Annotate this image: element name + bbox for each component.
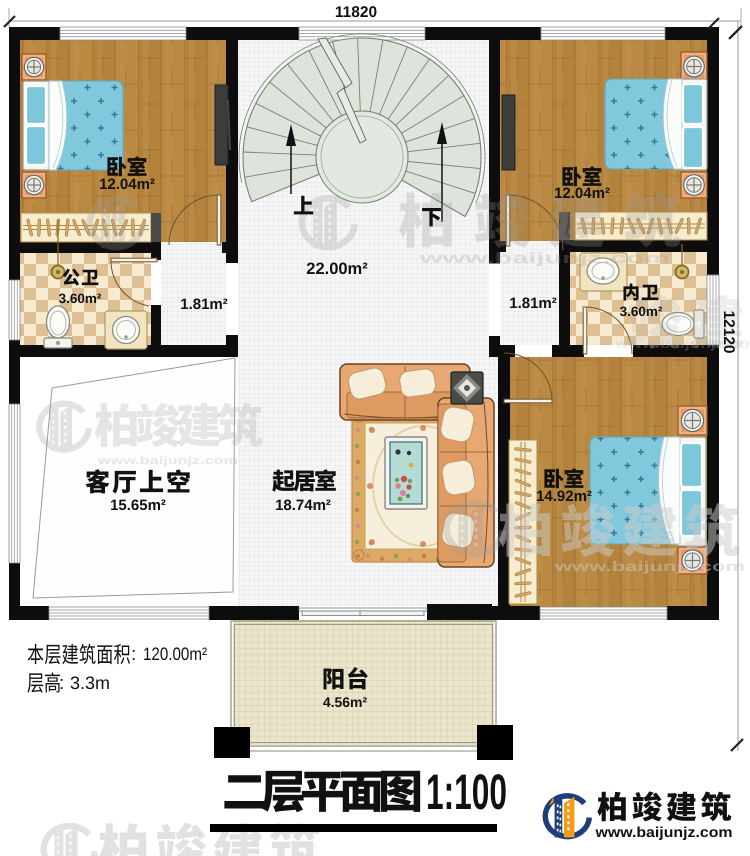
svg-text:12.04m²: 12.04m² xyxy=(554,185,610,202)
svg-text:11820: 11820 xyxy=(335,4,377,21)
svg-text:120.00m²: 120.00m² xyxy=(143,644,207,664)
svg-text:1:100: 1:100 xyxy=(426,764,507,820)
svg-text:www.baijunjz.com: www.baijunjz.com xyxy=(97,455,239,467)
svg-text::: : xyxy=(131,644,136,665)
svg-text:www.baijunjz.com: www.baijunjz.com xyxy=(553,558,745,574)
svg-text:4.56m²: 4.56m² xyxy=(323,694,368,710)
svg-text:15.65m²: 15.65m² xyxy=(110,497,166,514)
svg-text:3.60m²: 3.60m² xyxy=(59,291,102,306)
svg-text:1.81m²: 1.81m² xyxy=(180,296,228,313)
svg-text:www.baijunjz.com: www.baijunjz.com xyxy=(418,250,670,267)
svg-text:3.60m²: 3.60m² xyxy=(620,304,663,319)
svg-text:22.00m²: 22.00m² xyxy=(306,260,368,278)
svg-text:www.baijunjz.com: www.baijunjz.com xyxy=(594,825,732,841)
svg-text:14.92m²: 14.92m² xyxy=(536,488,592,505)
svg-text:18.74m²: 18.74m² xyxy=(275,497,331,514)
svg-text:12.04m²: 12.04m² xyxy=(99,176,155,193)
svg-text:12120: 12120 xyxy=(720,310,737,353)
svg-text:3.3m: 3.3m xyxy=(70,673,110,693)
svg-text::: : xyxy=(59,673,64,694)
svg-text:1.81m²: 1.81m² xyxy=(509,295,557,312)
